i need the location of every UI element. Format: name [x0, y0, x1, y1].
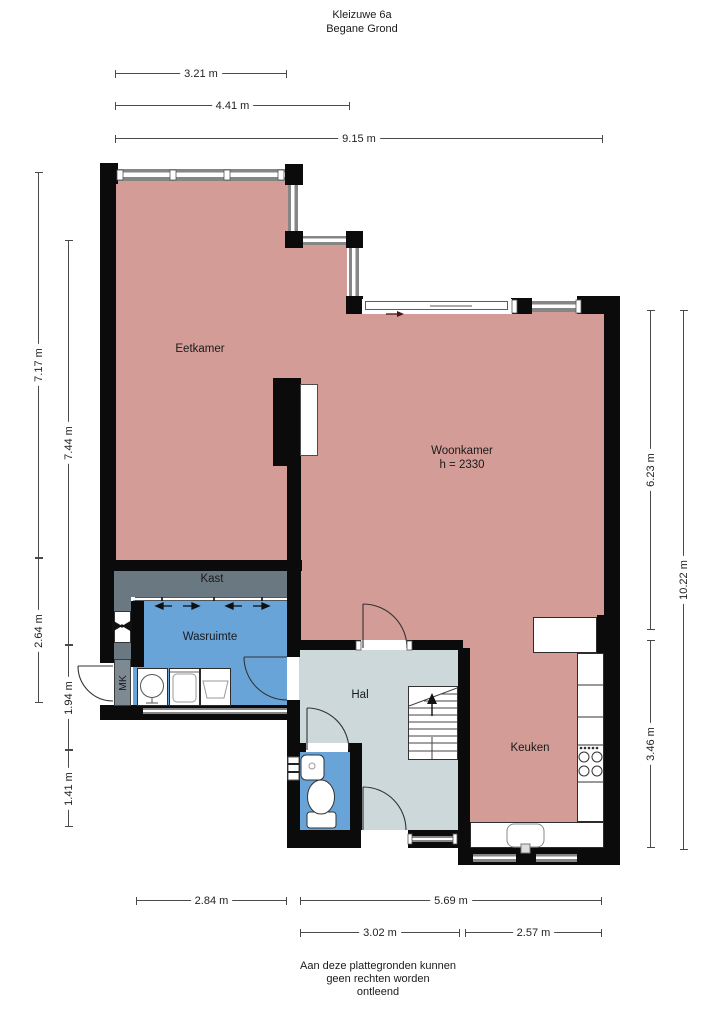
sliding-door-panel [365, 301, 508, 310]
wall-post-step1a [285, 164, 303, 185]
room-label-meterkast: MK [117, 675, 129, 691]
wall-east-bump [597, 615, 620, 655]
disclaimer-text: Aan deze plattegronden kunnen geen recht… [278, 960, 478, 999]
opening-front-door [361, 830, 408, 848]
dimension-label: 5.69 m [430, 895, 472, 907]
wall-kast-top [110, 560, 302, 571]
window-north-eetkamer [117, 169, 285, 181]
washing-machine [137, 668, 168, 706]
disclaimer-line: geen rechten worden [278, 973, 478, 986]
wall-post-step2b [346, 296, 363, 314]
room-label-kast: Kast [200, 573, 223, 585]
window-step3 [349, 248, 359, 296]
window-keuken-south-2 [536, 854, 577, 862]
toilet-floor [299, 752, 351, 831]
dimension-label: 10.22 m [678, 556, 690, 604]
window-north-woonkamer [531, 301, 577, 312]
dimension-top-3: 9.15 m [115, 138, 603, 139]
wall-divider-woonkamer [287, 378, 301, 650]
wall-hal-keuken [458, 648, 470, 848]
duct-shaft [300, 384, 318, 456]
staircase [408, 686, 458, 760]
wall-post-nw [100, 163, 118, 184]
dimension-bottom-3: 3.02 m [300, 932, 460, 933]
disclaimer-line: Aan deze plattegronden kunnen [278, 960, 478, 973]
window-southwest-low [143, 708, 287, 714]
room-label-wasruimte: Wasruimte [183, 631, 238, 643]
dimension-label: 1.94 m [63, 677, 75, 719]
dimension-label: 7.44 m [63, 422, 75, 464]
dimension-label: 9.15 m [338, 133, 380, 145]
window-front-sidelight [411, 836, 456, 842]
wall-post-step2a [346, 231, 363, 248]
title-floor: Begane Grond [262, 22, 462, 36]
service-cell-upper [114, 571, 131, 611]
side-entrance-door [78, 666, 113, 701]
page-title: Kleizuwe 6a Begane Grond [262, 8, 462, 36]
dimension-bottom-1: 2.84 m [136, 900, 287, 901]
wall-north-pier [511, 298, 532, 314]
dimension-left-5: 1.41 m [68, 750, 69, 827]
dimension-label: 1.41 m [63, 768, 75, 810]
service-cell-lower [114, 643, 131, 659]
room-label-hal: Hal [351, 689, 368, 701]
dimension-top-2: 4.41 m [115, 105, 350, 106]
room-label-keuken: Keuken [510, 742, 549, 754]
dimension-left-2: 7.44 m [68, 240, 69, 645]
dimension-label: 3.21 m [180, 68, 222, 80]
disclaimer-line: ontleend [278, 986, 478, 999]
eetkamer-floor [116, 180, 288, 563]
dimension-label: 7.17 m [33, 344, 45, 386]
window-step2 [303, 236, 346, 245]
dimension-left-1: 7.17 m [38, 172, 39, 558]
dimension-left-3: 2.64 m [38, 558, 39, 703]
dimension-label: 2.84 m [191, 895, 233, 907]
dimension-label: 4.41 m [212, 100, 254, 112]
dimension-left-4: 1.94 m [68, 645, 69, 750]
dimension-label: 6.23 m [645, 449, 657, 491]
dimension-right-1: 6.23 m [650, 310, 651, 630]
wall-toilet-east [350, 743, 362, 833]
dimension-bottom-2: 5.69 m [300, 900, 602, 901]
dimension-label: 2.57 m [513, 927, 555, 939]
wall-post-step1b [285, 231, 303, 248]
room-label-eetkamer: Eetkamer [175, 343, 224, 355]
dryer [169, 668, 200, 706]
floorplan-page: Kleizuwe 6a Begane Grond [0, 0, 720, 1017]
wall-west-mid-b [287, 700, 300, 833]
kitchen-counter-east [577, 653, 604, 822]
dimension-bottom-4: 2.57 m [465, 932, 602, 933]
room-label-woonkamer-height: h = 2330 [439, 459, 484, 471]
opening-hal-woonkamer [361, 640, 407, 650]
title-address: Kleizuwe 6a [262, 8, 462, 22]
dimension-label: 3.46 m [645, 723, 657, 765]
laundry-basket-unit [200, 668, 231, 706]
dimension-label: 3.02 m [359, 927, 401, 939]
wall-west-mid-a [287, 648, 300, 657]
wall-wasruimte-partition [131, 601, 144, 667]
wall-divider-stub [273, 378, 288, 466]
wall-east [604, 296, 620, 865]
ventilation-cell [114, 611, 131, 643]
window-step1 [288, 185, 298, 231]
kitchen-cabinet-block [533, 617, 597, 653]
dimension-top-1: 3.21 m [115, 73, 287, 74]
dimension-right-3: 3.46 m [650, 640, 651, 848]
window-keuken-south-1 [473, 854, 516, 862]
woonkamer-floor [346, 312, 605, 649]
kitchen-counter-south [470, 822, 604, 848]
kast-sliding-track [135, 597, 287, 601]
dimension-right-2: 10.22 m [683, 310, 684, 850]
opening-toilet-door [306, 743, 348, 752]
dimension-label: 2.64 m [33, 610, 45, 652]
room-label-woonkamer: Woonkamer [431, 445, 493, 457]
